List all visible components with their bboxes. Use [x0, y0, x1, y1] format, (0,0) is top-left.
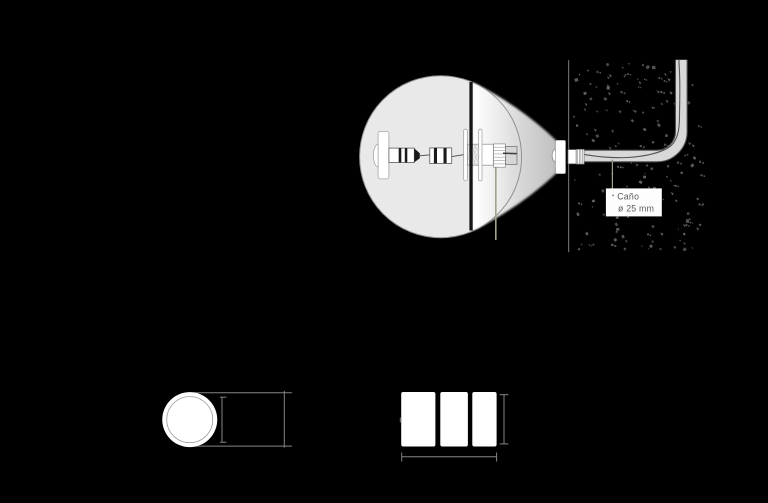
svg-text:Caño: Caño	[617, 192, 639, 202]
svg-text:ø 25 mm: ø 25 mm	[618, 204, 654, 214]
